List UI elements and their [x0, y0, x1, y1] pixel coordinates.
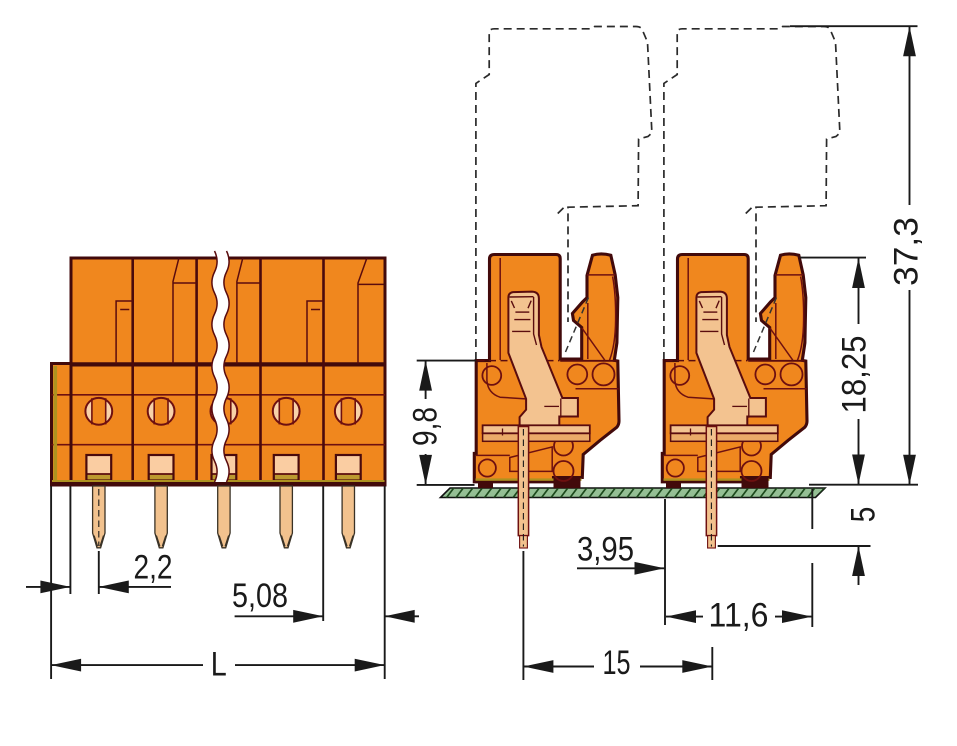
svg-text:9,8: 9,8: [407, 407, 445, 446]
svg-text:37,3: 37,3: [888, 217, 926, 286]
svg-text:5: 5: [845, 507, 883, 523]
svg-text:5,08: 5,08: [232, 577, 288, 615]
svg-text:15: 15: [603, 644, 631, 682]
svg-text:L: L: [211, 646, 227, 684]
svg-text:18,25: 18,25: [836, 336, 874, 414]
svg-text:11,6: 11,6: [709, 597, 769, 635]
svg-text:3,95: 3,95: [577, 531, 634, 569]
svg-text:2,2: 2,2: [134, 549, 173, 587]
